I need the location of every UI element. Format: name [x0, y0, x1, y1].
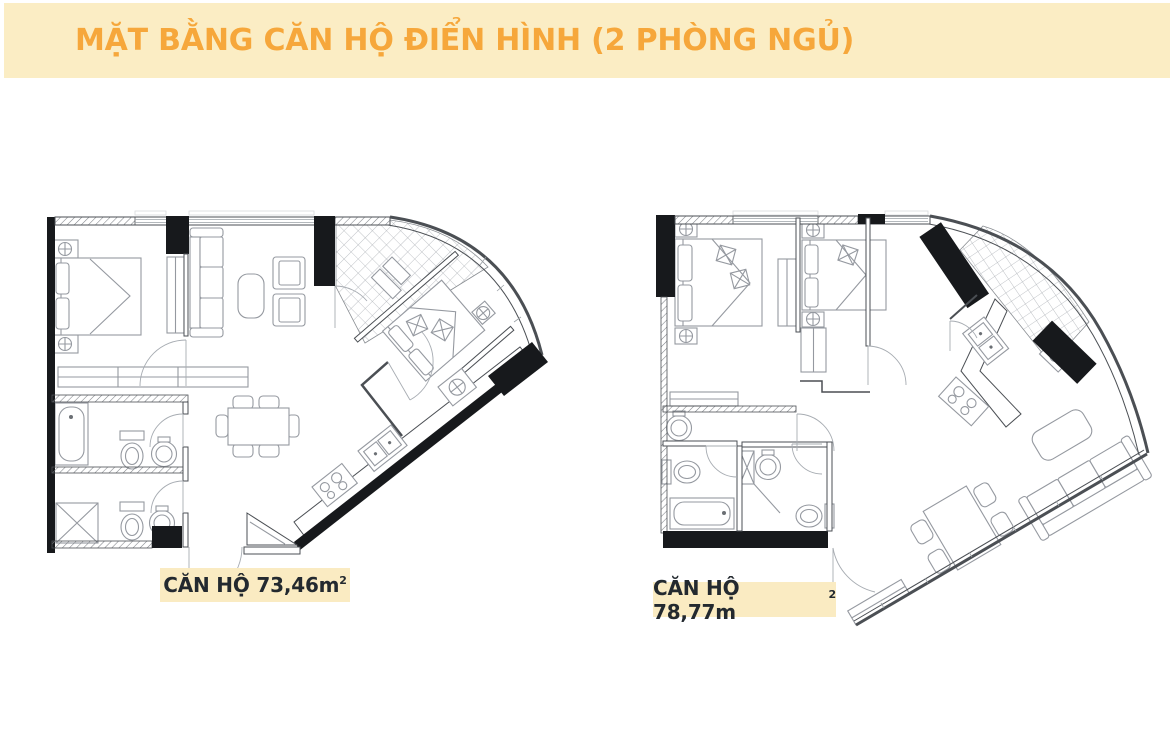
chair-icon [259, 444, 279, 457]
sink-icon [756, 450, 781, 480]
chair-icon [259, 396, 279, 409]
sofa-icon [190, 228, 223, 337]
wall-bedroom [184, 254, 188, 336]
wall-bedrooms [796, 218, 800, 332]
wall-diagonal [856, 454, 1147, 625]
hall-wall [362, 362, 402, 436]
door-arc [706, 446, 737, 477]
column [314, 216, 335, 286]
lamp-icon [807, 224, 820, 237]
bed-icon [802, 240, 886, 310]
wall-bottom [52, 541, 152, 548]
bedroom-2 [801, 223, 886, 372]
tv-cabinet-icon [167, 257, 184, 333]
door-arc [868, 346, 906, 385]
column [858, 214, 885, 224]
column [656, 215, 675, 297]
toilet-icon [120, 431, 144, 469]
living-room [190, 228, 305, 337]
lamp-icon [680, 330, 693, 343]
entry-niche [247, 513, 297, 545]
page-title: MẶT BẰNG CĂN HỘ ĐIỂN HÌNH (2 PHÒNG NGỦ) [4, 3, 1170, 78]
door-arc [792, 444, 822, 474]
wall-bedroom2 [866, 218, 870, 346]
wardrobe-icon [801, 328, 826, 372]
lamp-icon [59, 243, 72, 256]
toilet-icon [662, 460, 700, 484]
armchair-icon [273, 257, 305, 289]
sink-icon [152, 437, 177, 467]
floor-plan-left-drawing [40, 195, 550, 575]
column [152, 526, 182, 548]
bathtub-icon [55, 403, 88, 465]
wall-bathroom [52, 395, 188, 402]
living-room [848, 406, 1153, 624]
wall-bottom [663, 531, 828, 548]
lamp-icon [59, 338, 72, 351]
wall-bathroom [663, 406, 796, 412]
area-label-text: CĂN HỘ 78,77m [653, 576, 829, 624]
console-icon [848, 580, 910, 625]
chair-icon [233, 444, 253, 457]
coffee-table-icon [1029, 406, 1095, 463]
bed-icon [675, 239, 762, 326]
door-arc [833, 548, 875, 592]
area-label-right: CĂN HỘ 78,77m2 [653, 582, 836, 617]
dresser-icon [670, 392, 738, 406]
floor-plan-sheet: MẶT BẰNG CĂN HỘ ĐIỂN HÌNH (2 PHÒNG NGỦ) [0, 0, 1170, 735]
chair-icon [216, 415, 228, 437]
dining-set [906, 476, 1018, 580]
bathrooms [662, 411, 834, 529]
area-label-left: CĂN HỘ 73,46m2 [160, 568, 350, 602]
lamp-icon [807, 313, 820, 326]
dining-set [216, 396, 299, 457]
entry-step [244, 547, 300, 554]
armchair-icon [273, 294, 305, 326]
column [166, 216, 189, 254]
wall-step [800, 381, 870, 392]
shower-icon [56, 503, 98, 543]
bedroom-1 [670, 221, 796, 406]
area-label-superscript: 2 [829, 588, 836, 601]
area-label-superscript: 2 [339, 574, 346, 587]
chair-icon [233, 396, 253, 409]
coffee-table-icon [238, 274, 264, 318]
wall-left [661, 297, 667, 533]
wardrobe-icon [778, 259, 796, 326]
area-label-text: CĂN HỘ 73,46m [163, 573, 339, 597]
toilet-icon [120, 502, 144, 540]
title-banner: MẶT BẰNG CĂN HỘ ĐIỂN HÌNH (2 PHÒNG NGỦ) [4, 3, 1170, 78]
wardrobe-icon [58, 367, 248, 387]
bed-icon [53, 258, 141, 335]
dining-table-icon [228, 408, 289, 445]
wall-left [47, 217, 55, 553]
sink-icon [667, 411, 692, 441]
bathtub-icon [670, 498, 734, 529]
